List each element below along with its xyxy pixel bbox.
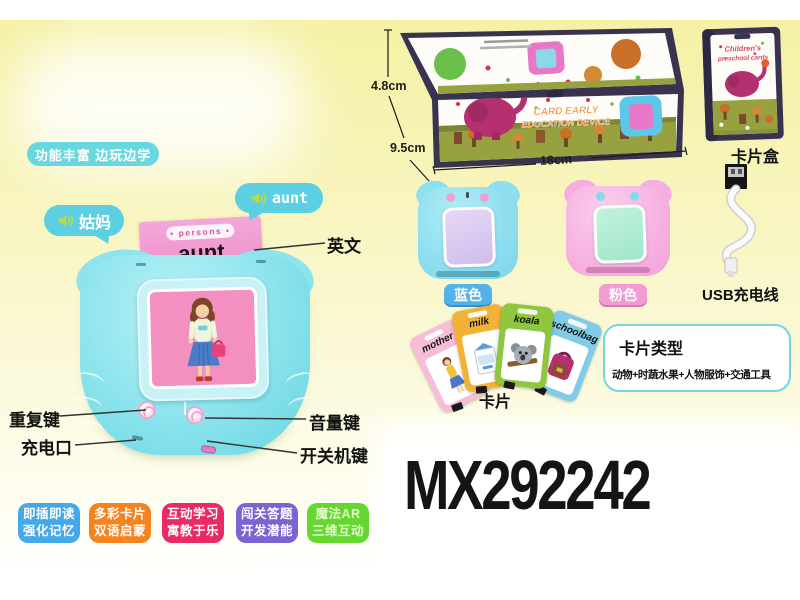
- callout-charging-port: 充电口: [21, 434, 72, 459]
- usb-cable: [708, 162, 764, 280]
- bubble-english-word: aunt: [272, 189, 308, 207]
- callout-volume-key: 音量键: [309, 409, 360, 434]
- badge-line2: 三维互动: [312, 523, 364, 541]
- callout-repeat-key: 重复键: [9, 406, 60, 431]
- card-slot-mark: [136, 263, 146, 266]
- badge-line2: 强化记忆: [23, 523, 75, 541]
- product-sheet: 功能丰富 边玩边学 姑妈 aunt • persons • aunt: [0, 0, 800, 600]
- card-box-label: 卡片盒: [731, 143, 779, 167]
- card-fan-label: 卡片: [479, 388, 511, 412]
- variant-label-pink: 粉色: [599, 284, 647, 305]
- card-box-art-line1: Children's: [724, 43, 761, 53]
- aunt-illustration: [150, 290, 256, 387]
- feature-badge-5: 魔法AR 三维互动: [307, 503, 369, 543]
- device-seam: [184, 402, 186, 415]
- card-types-description: 动物+时蔬水果+人物服饰+交通工具: [612, 367, 771, 382]
- fan-card-koala: koala: [494, 303, 554, 390]
- badge-line2: 双语启蒙: [94, 523, 146, 541]
- feature-badge-2: 多彩卡片 双语启蒙: [89, 503, 151, 543]
- device-screen: [147, 287, 260, 390]
- model-number: MX292242: [404, 450, 649, 520]
- card-types-title: 卡片类型: [619, 335, 683, 359]
- device-button: [446, 193, 455, 202]
- badge-line1: 互动学习: [167, 506, 219, 524]
- variant-device-pink: [566, 186, 670, 276]
- badge-line1: 闯关答题: [241, 506, 293, 524]
- feature-badge-1: 即插即读 强化记忆: [18, 503, 80, 543]
- package-box: CARD EARLY EDUCATION DEVICE: [388, 20, 692, 172]
- fan-card-word: koala: [500, 312, 553, 328]
- device-button: [596, 192, 605, 201]
- usb-cable-label: USB充电线: [702, 284, 779, 305]
- badge-line2: 寓教于乐: [167, 523, 219, 541]
- badge-line1: 即插即读: [23, 506, 75, 524]
- callout-power-key: 开关机键: [300, 442, 368, 467]
- feature-badge-4: 闯关答题 开发潜能: [236, 503, 298, 543]
- speech-bubble-chinese: 姑妈: [44, 205, 124, 236]
- device-button: [630, 192, 639, 201]
- koala-illustration-icon: [505, 338, 540, 373]
- feature-badge-3: 互动学习 寓教于乐: [162, 503, 224, 543]
- card-types-box: 卡片类型 动物+时蔬水果+人物服饰+交通工具: [603, 324, 791, 392]
- speech-bubble-english: aunt: [235, 183, 323, 213]
- badge-line1: 多彩卡片: [94, 506, 146, 524]
- speaker-icon: [250, 191, 267, 206]
- card-slot-mark: [256, 260, 266, 263]
- badge-line1: 魔法AR: [315, 506, 360, 524]
- feature-pill-label: 功能丰富 边玩边学: [35, 145, 152, 164]
- badge-line2: 开发潜能: [241, 523, 293, 541]
- card-reader-device: [80, 255, 310, 455]
- repeat-button: [138, 401, 156, 419]
- feature-pill: 功能丰富 边玩边学: [27, 142, 159, 166]
- box-art-title-1: CARD EARLY: [533, 105, 599, 118]
- microphone-hole: [466, 192, 469, 198]
- device-button: [480, 193, 489, 202]
- card-slot: [436, 271, 500, 277]
- pink-device-screen: [593, 204, 647, 264]
- card-picture-panel: [500, 328, 545, 383]
- speaker-icon: [57, 213, 74, 228]
- volume-button: [186, 406, 204, 424]
- variant-device-blue: [418, 187, 518, 279]
- dimension-depth: 9.5cm: [390, 141, 425, 155]
- blue-device-screen: [442, 206, 496, 268]
- dimension-width: 18cm: [540, 152, 573, 168]
- card-slot: [586, 267, 650, 273]
- callout-english: 英文: [327, 232, 361, 257]
- bubble-chinese-word: 姑妈: [79, 209, 111, 233]
- card-storage-box: Children's preschool cards: [696, 22, 790, 147]
- dimension-height: 4.8cm: [371, 79, 406, 93]
